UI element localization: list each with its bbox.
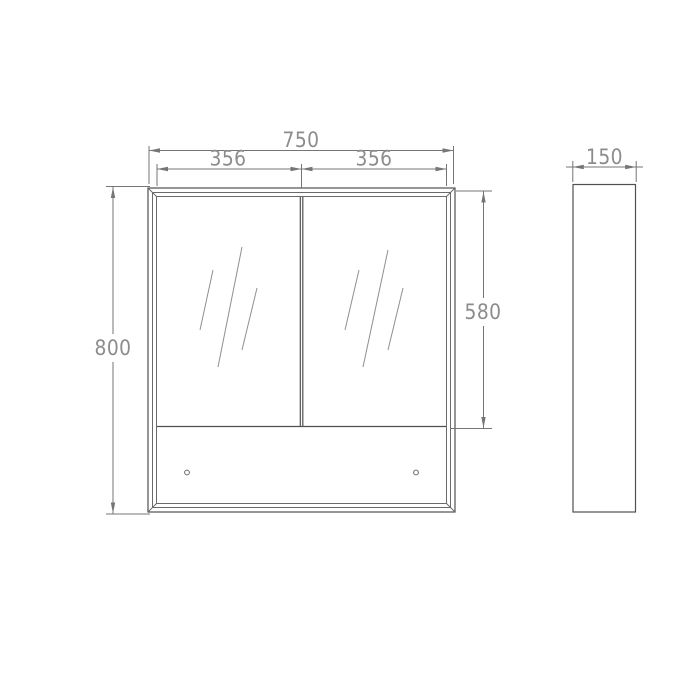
dimension-door-height: 580 bbox=[450, 191, 502, 429]
mirror-reflection-line bbox=[200, 270, 213, 330]
dimension-label-door-height: 580 bbox=[465, 300, 502, 324]
arrowhead-down-icon bbox=[111, 503, 115, 514]
mirror-cabinet-drawing: 750 356 356 800 580 bbox=[0, 0, 700, 700]
dimension-label-overall-height: 800 bbox=[95, 336, 132, 360]
cabinet-frame-mid-line bbox=[153, 193, 451, 508]
mirror-reflection-line bbox=[218, 247, 242, 367]
arrowhead-left-icon bbox=[157, 167, 168, 172]
mirror-reflection-line bbox=[345, 270, 359, 330]
cabinet-outer-outline bbox=[148, 188, 455, 512]
dimension-door-widths: 356 356 bbox=[157, 147, 447, 189]
arrowhead-left-icon bbox=[302, 167, 313, 172]
arrowhead-up-icon bbox=[481, 192, 485, 203]
dimension-label-overall-width: 750 bbox=[283, 128, 320, 152]
mirror-reflection-line bbox=[242, 288, 257, 350]
mirror-reflection-line bbox=[363, 250, 388, 367]
dimension-label-depth: 150 bbox=[586, 145, 623, 169]
shelf-hole-left bbox=[185, 470, 190, 475]
shelf-hole-right bbox=[414, 470, 419, 475]
arrowhead-right-icon bbox=[443, 148, 454, 153]
arrowhead-right-icon bbox=[625, 165, 636, 169]
dimension-overall-height: 800 bbox=[95, 187, 151, 515]
dimension-label-right-door-width: 356 bbox=[356, 147, 393, 171]
arrowhead-right-icon bbox=[436, 167, 447, 172]
side-view-outline bbox=[573, 185, 636, 513]
technical-drawing-canvas: 750 356 356 800 580 bbox=[0, 0, 700, 700]
arrowhead-up-icon bbox=[111, 187, 115, 198]
arrowhead-down-icon bbox=[481, 417, 485, 428]
arrowhead-left-icon bbox=[149, 148, 160, 153]
front-view bbox=[148, 188, 455, 512]
arrowhead-left-icon bbox=[573, 165, 584, 169]
side-view bbox=[573, 185, 636, 513]
arrowhead-right-icon bbox=[291, 167, 302, 172]
mirror-reflection-line bbox=[388, 288, 403, 350]
dimension-label-left-door-width: 356 bbox=[210, 147, 247, 171]
dimension-depth: 150 bbox=[566, 145, 643, 182]
cabinet-frame-inner-line bbox=[157, 197, 447, 504]
